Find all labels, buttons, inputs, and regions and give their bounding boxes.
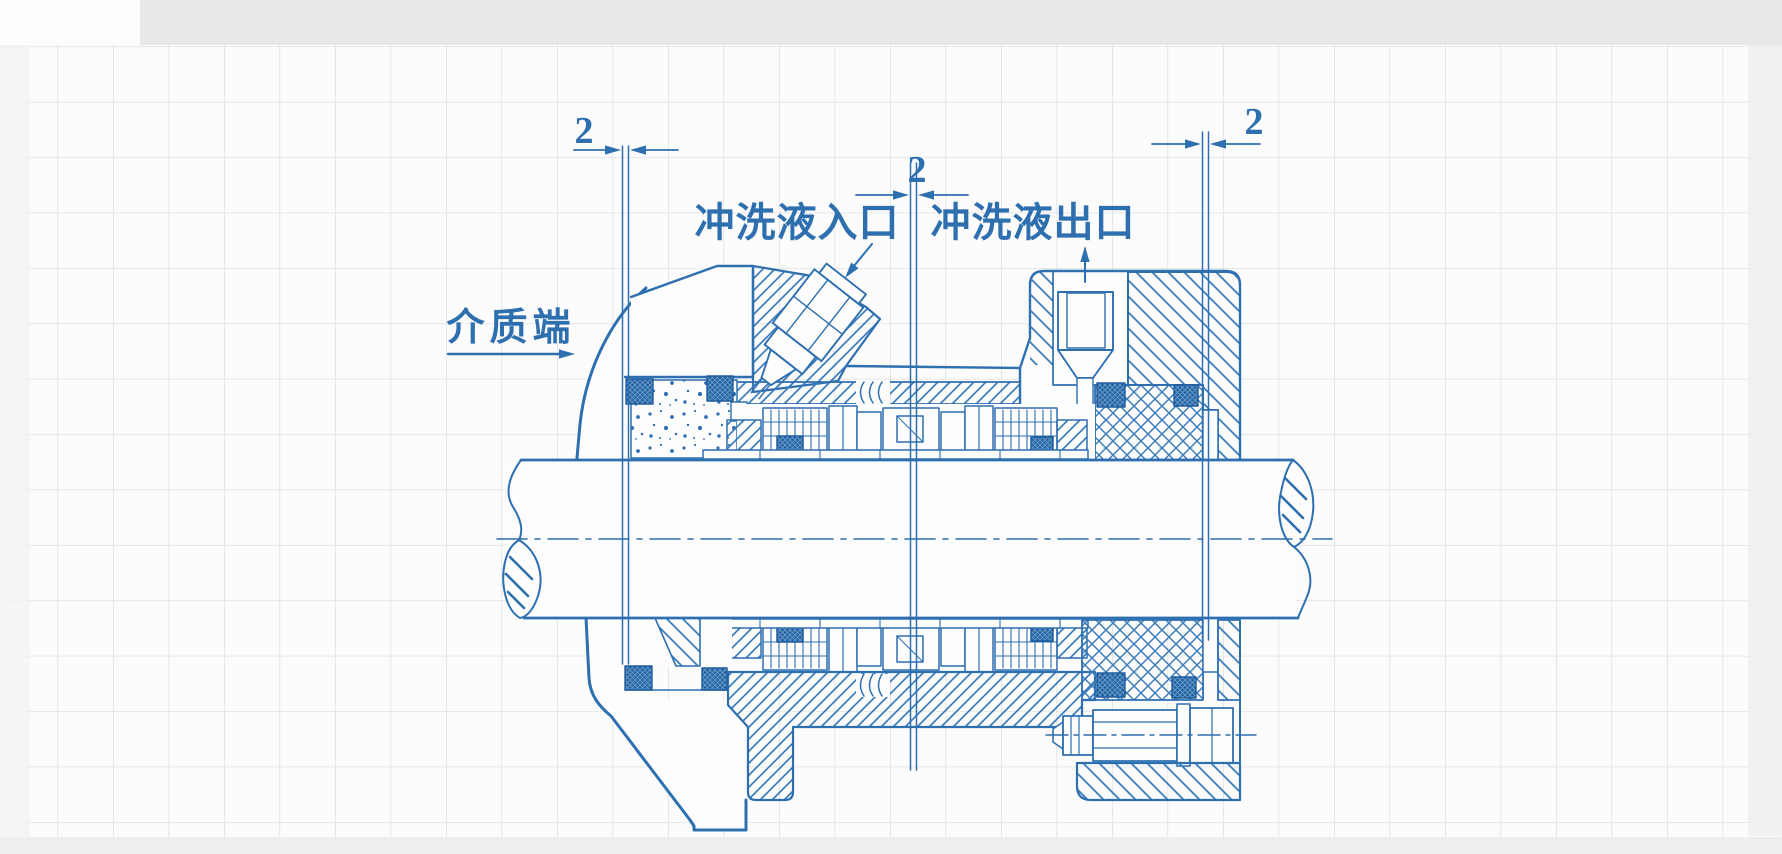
medium-end-label: 介质端: [446, 305, 575, 349]
seal-internals-bottom: [703, 619, 1095, 674]
blueprint-page: 2 2 2 介质端 冲洗液入口 冲洗液出口: [0, 0, 1782, 854]
flush-inlet-label: 冲洗液入口: [695, 200, 900, 246]
gland-foot: [1077, 763, 1240, 800]
dim-right-value: 2: [1245, 101, 1264, 143]
flush-outlet-label: 冲洗液出口: [931, 200, 1136, 246]
dim-middle-value: 2: [908, 149, 927, 191]
mechanical-seal-drawing: 2 2 2 介质端 冲洗液入口 冲洗液出口: [0, 0, 1782, 854]
dim-left-value: 2: [575, 110, 594, 152]
seal-internals-top: [703, 404, 1095, 459]
